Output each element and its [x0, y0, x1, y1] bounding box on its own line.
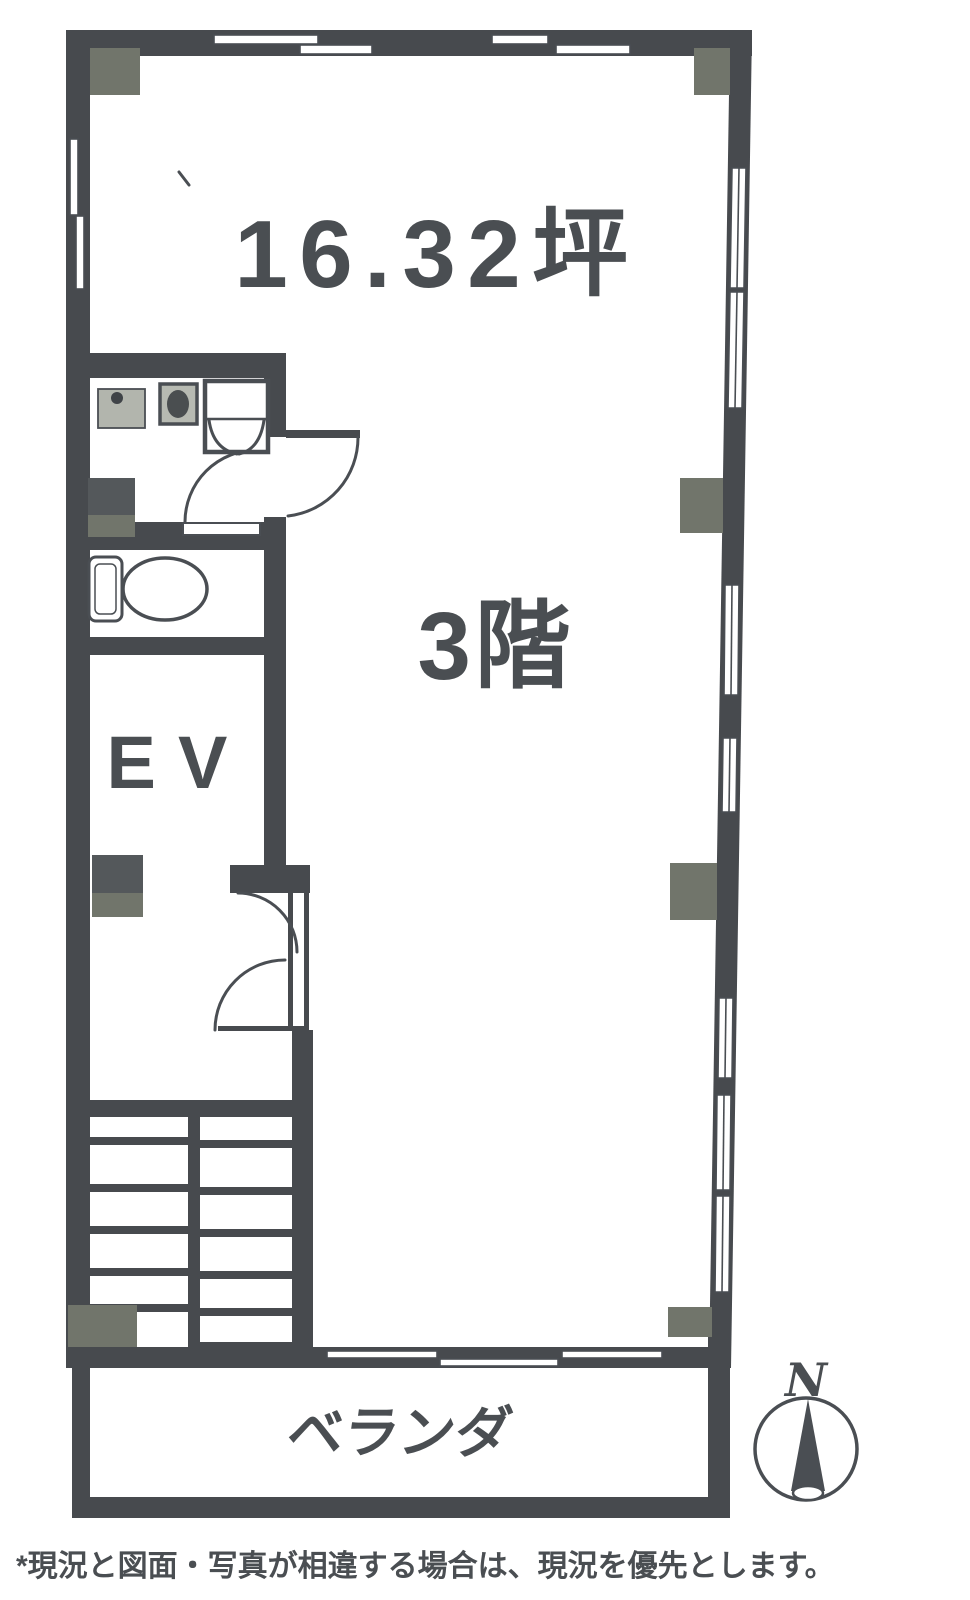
kitchen-faucet-icon [111, 392, 123, 404]
pillar-left-low-base [92, 893, 143, 917]
window-track-line [729, 738, 730, 812]
veranda-wall-right [708, 1337, 730, 1518]
pillar-left-low-top [92, 855, 143, 893]
door-swing-arc-main [288, 437, 358, 516]
window-track-line [725, 998, 726, 1078]
pillar-left-mid-base [88, 515, 135, 537]
pillar-bottom-left [68, 1305, 137, 1347]
floor-plan-page: 16.32坪 3階 EV ベランダ N *現況と図面・写真が相違する場合は、現況… [0, 0, 970, 1600]
stairs-top-wall [66, 1100, 313, 1117]
toilet-tank [89, 557, 122, 621]
stair-door-jamb-line-2 [304, 893, 309, 1030]
kitchen-wall-top [90, 353, 286, 378]
veranda-door-slit-2 [440, 1359, 558, 1366]
stair-tread [200, 1342, 293, 1348]
partition-wall-lower [264, 517, 286, 865]
stair-tread [200, 1308, 293, 1316]
stair-tread [200, 1229, 293, 1237]
window-left-2 [76, 216, 84, 289]
window-track-line [722, 1196, 723, 1292]
veranda-door-slit-1 [327, 1351, 437, 1358]
window-top-1b [300, 45, 372, 54]
outer-wall-top [66, 30, 752, 56]
stair-tread [200, 1140, 293, 1148]
toilet-bowl [123, 558, 207, 620]
window-left-1 [70, 139, 78, 215]
stair-door-arc-lower [215, 960, 285, 1030]
stair-tread [90, 1226, 188, 1234]
pillar-right-mid-2 [670, 863, 717, 920]
pillar-bottom-right [668, 1307, 712, 1337]
veranda-wall-bottom [72, 1497, 730, 1518]
window-track-line [723, 1095, 724, 1190]
scan-tick-mark [179, 172, 189, 185]
veranda-label: ベランダ [283, 1401, 516, 1464]
floor-label: 3階 [417, 593, 574, 700]
veranda-wall-left [72, 1368, 90, 1518]
window-top-2a [492, 35, 548, 44]
pillar-right-mid-1 [680, 478, 723, 533]
veranda-label-group: ベランダ [283, 1401, 516, 1464]
stair-tread [200, 1271, 293, 1279]
stair-door-header-wall [230, 865, 310, 893]
area-label: 16.32坪 [234, 201, 639, 308]
stair-door-jamb-line-1 [288, 893, 293, 1030]
stair-tread [90, 1268, 188, 1276]
kitchen-sink-basin [167, 390, 189, 418]
footer-disclaimer: *現況と図面・写真が相違する場合は、現況を優先とします。 [16, 1549, 835, 1583]
compass-north-label: N [783, 1353, 829, 1407]
floor-plan-drawing: 16.32坪 3階 EV ベランダ N *現況と図面・写真が相違する場合は、現況… [0, 0, 970, 1600]
stair-tread [90, 1184, 188, 1192]
window-top-1a [214, 35, 318, 44]
window-track-line [731, 585, 732, 695]
stairs-center-divider [188, 1117, 200, 1347]
stair-tread [90, 1137, 188, 1145]
stairhall-wall [292, 1030, 313, 1100]
stairs-right-wall [292, 1117, 313, 1347]
elevator-label: EV [106, 721, 249, 804]
pillar-left-mid-top [88, 478, 135, 515]
compass-needle-base [793, 1486, 823, 1500]
pillar-top-right [694, 48, 730, 95]
pillar-top-left [90, 48, 140, 95]
toilet-ev-wall [90, 637, 286, 655]
veranda-door-slit-3 [562, 1351, 662, 1358]
door-swing-arc-kitchen [185, 450, 257, 522]
stair-tread [200, 1187, 293, 1195]
door-leaf-main [286, 430, 360, 438]
window-top-2b [556, 45, 630, 54]
door-leaf-kitchen [183, 523, 260, 535]
